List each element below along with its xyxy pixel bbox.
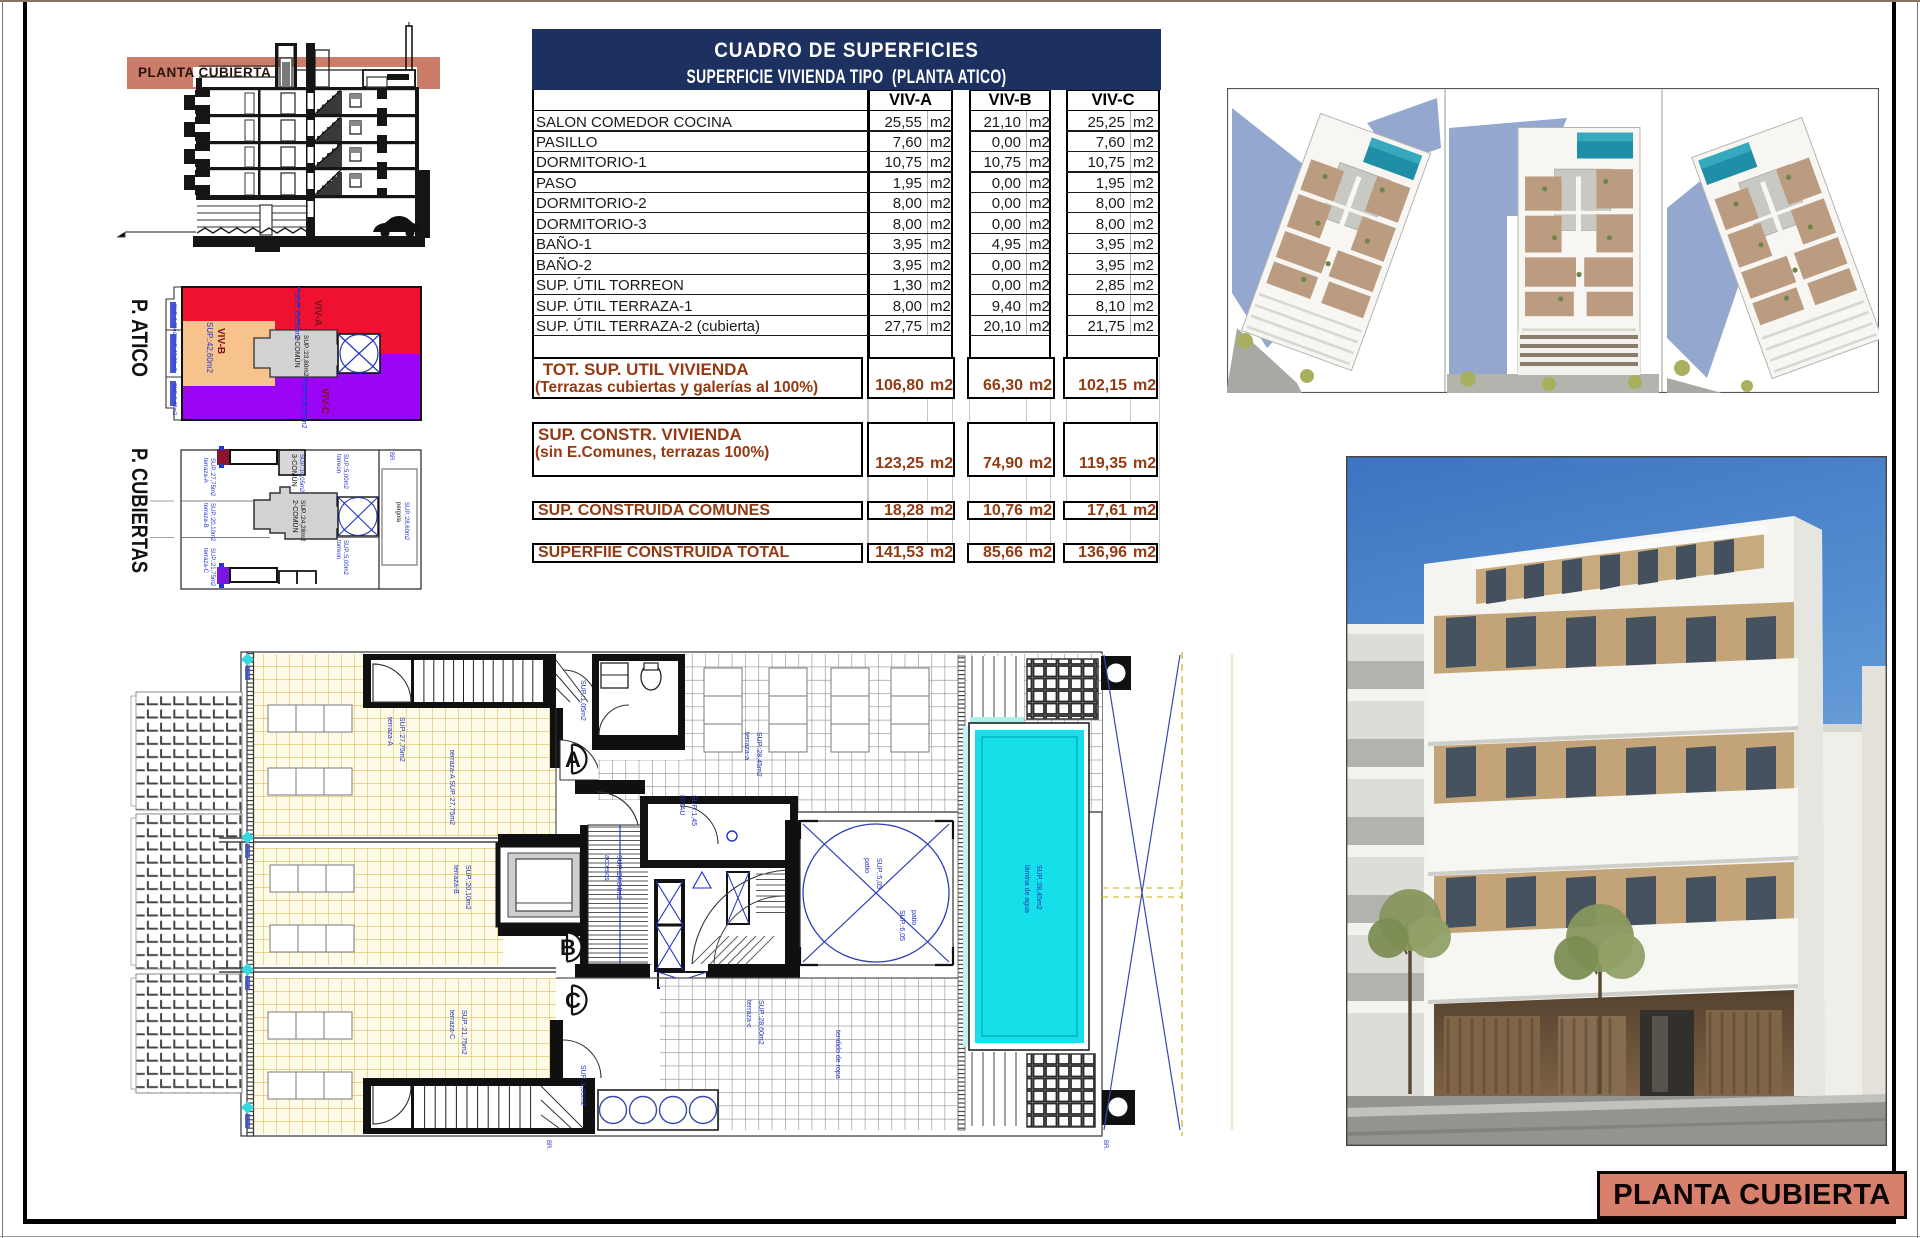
svg-text:SUP.:1,05m2: SUP.:1,05m2	[579, 680, 586, 721]
svg-text:SUP.:28,60m2: SUP.:28,60m2	[757, 1000, 764, 1045]
svg-text:P. CUBIERTAS: P. CUBIERTAS	[127, 448, 152, 573]
svg-text:SUP.:6,05: SUP.:6,05	[898, 910, 905, 941]
svg-text:SUP.:27,75m2: SUP.:27,75m2	[209, 458, 215, 497]
svg-text:SUP.:27,75m2: SUP.:27,75m2	[398, 717, 405, 762]
svg-text:terraza-c: terraza-c	[745, 1000, 752, 1028]
svg-text:BR.: BR.	[1102, 1140, 1108, 1150]
svg-text:SUP.:42,60m2: SUP.:42,60m2	[171, 336, 177, 371]
svg-text:terraza-A: terraza-A	[202, 458, 208, 483]
svg-text:torreon: torreon	[335, 540, 341, 559]
svg-text:C: C	[565, 988, 581, 1013]
svg-text:P. ATICO: P. ATICO	[127, 299, 152, 377]
svg-text:terraza-a: terraza-a	[743, 732, 750, 760]
svg-text:SUP.:28,45m2: SUP.:28,45m2	[1035, 865, 1042, 910]
svg-text:torreon: torreon	[335, 454, 341, 473]
svg-text:BR.: BR.	[545, 1140, 551, 1150]
svg-text:patio: patio	[863, 858, 870, 873]
svg-text:SUP.:5,00m2: SUP.:5,00m2	[342, 454, 348, 490]
svg-text:SUP.:28,60m2: SUP.:28,60m2	[403, 502, 409, 541]
svg-text:2-COMÚN: 2-COMÚN	[293, 335, 302, 368]
svg-text:B: B	[560, 935, 576, 960]
svg-text:SUP.:21,75m2: SUP.:21,75m2	[209, 548, 215, 587]
svg-text:3-COMÚN: 3-COMÚN	[290, 454, 299, 487]
svg-text:pergola: pergola	[395, 502, 401, 523]
svg-text:SUP.:10,05m2: SUP.:10,05m2	[298, 454, 304, 493]
svg-text:SUP.:20,10m2: SUP.:20,10m2	[464, 865, 471, 910]
svg-text:SUP.:28,45m2: SUP.:28,45m2	[755, 732, 762, 777]
svg-text:terraza-B: terraza-B	[202, 503, 208, 528]
svg-text:SUP.:5,00m2: SUP.:5,00m2	[342, 540, 348, 576]
svg-text:terraza-A: terraza-A	[386, 717, 393, 746]
svg-text:accesos: accesos	[603, 855, 610, 881]
svg-text:VIV-A: VIV-A	[312, 300, 323, 326]
svg-text:SUP.:21,75m2: SUP.:21,75m2	[460, 1010, 467, 1055]
svg-text:SUP.:20,10m2: SUP.:20,10m2	[209, 503, 215, 542]
svg-text:SUP.:1,05m2: SUP.:1,05m2	[579, 1065, 586, 1106]
svg-text:SUP.:106,80m2: SUP.:106,80m2	[293, 292, 300, 341]
svg-text:SUP.:42,60m2: SUP.:42,60m2	[205, 322, 214, 374]
svg-text:SUP.:24,28m2: SUP.:24,28m2	[299, 500, 306, 542]
svg-text:SUP.:102,15m2: SUP.:102,15m2	[300, 380, 307, 429]
svg-text:VIV-B: VIV-B	[215, 328, 226, 354]
svg-text:SUP.:5,40m2: SUP.:5,40m2	[171, 383, 177, 415]
svg-text:SUP.:24,84m2: SUP.:24,84m2	[615, 855, 622, 900]
svg-text:BR.: BR.	[388, 452, 394, 462]
svg-text:SUP.:23,80m2: SUP.:23,80m2	[302, 335, 309, 377]
svg-text:tendido de ropa: tendido de ropa	[834, 1030, 841, 1079]
svg-text:RITAU: RITAU	[678, 795, 685, 815]
svg-text:VIV-C: VIV-C	[319, 388, 330, 414]
svg-text:SUP.:1,45: SUP.:1,45	[690, 795, 697, 826]
svg-text:terraza-A SUP.:27,75m2: terraza-A SUP.:27,75m2	[448, 750, 455, 825]
svg-text:SUP.:5,05: SUP.:5,05	[875, 858, 882, 889]
svg-text:lámina de agua: lámina de agua	[1023, 865, 1030, 913]
svg-text:terraza-C: terraza-C	[448, 1010, 455, 1039]
svg-text:2-COMÚN: 2-COMÚN	[291, 500, 300, 533]
svg-text:SUP.:6,70m2: SUP.:6,70m2	[171, 304, 177, 336]
svg-text:A: A	[565, 747, 581, 772]
svg-text:terraza-C: terraza-C	[202, 548, 208, 574]
svg-text:patio: patio	[910, 910, 917, 925]
svg-text:terraza-B: terraza-B	[452, 865, 459, 894]
